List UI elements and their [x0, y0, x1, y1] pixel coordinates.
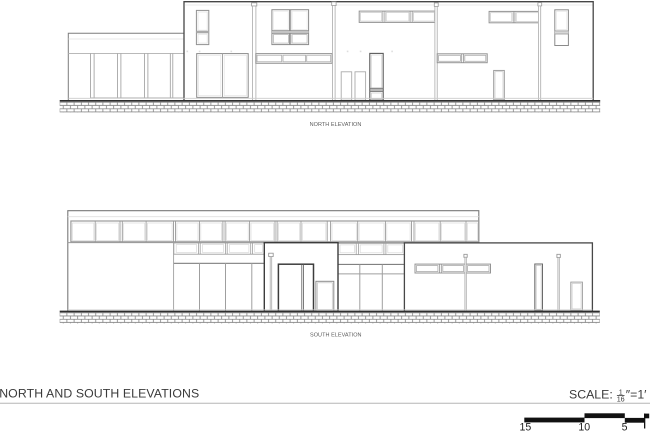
svg-text:NORTH ELEVATION: NORTH ELEVATION: [310, 122, 362, 128]
svg-text:″=1′: ″=1′: [626, 388, 647, 402]
svg-text:10: 10: [578, 422, 590, 431]
svg-text:16: 16: [617, 395, 625, 404]
svg-text:NORTH AND SOUTH ELEVATIONS: NORTH AND SOUTH ELEVATIONS: [0, 387, 199, 401]
svg-text:5: 5: [622, 422, 628, 431]
svg-text:15: 15: [520, 422, 532, 431]
svg-text:SCALE:: SCALE:: [569, 388, 613, 402]
svg-text:SOUTH ELEVATION: SOUTH ELEVATION: [310, 333, 362, 339]
